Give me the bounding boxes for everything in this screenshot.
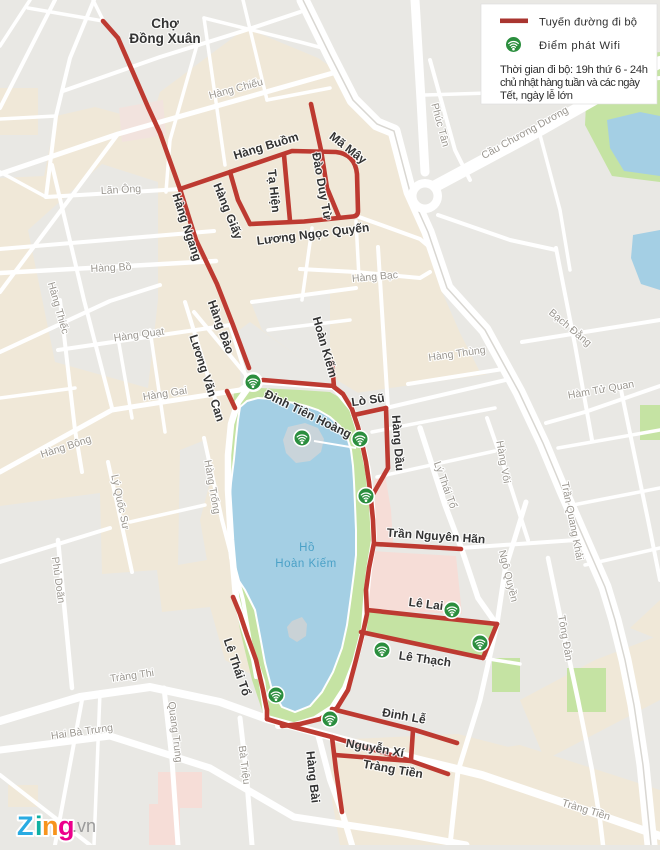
svg-text:Hàng Bồ: Hàng Bồ — [90, 261, 132, 275]
svg-text:Lãn Ông: Lãn Ông — [101, 182, 142, 197]
svg-text:Hồ: Hồ — [299, 542, 315, 554]
svg-text:Chợ: Chợ — [151, 16, 179, 31]
svg-text:chủ nhật hàng tuần và các ngày: chủ nhật hàng tuần và các ngày — [500, 77, 640, 89]
svg-text:Hoàn Kiếm: Hoàn Kiếm — [275, 558, 336, 570]
svg-text:n: n — [42, 811, 59, 841]
svg-text:Điểm phát Wifi: Điểm phát Wifi — [539, 40, 620, 52]
svg-text:Tuyến đường đi bộ: Tuyến đường đi bộ — [539, 17, 637, 29]
svg-text:Thời gian đi bộ: 19h thứ 6 - 2: Thời gian đi bộ: 19h thứ 6 - 24h — [500, 64, 648, 76]
svg-text:Tết, ngày lễ lớn: Tết, ngày lễ lớn — [500, 89, 573, 102]
svg-text:.vn: .vn — [72, 816, 96, 836]
svg-text:Z: Z — [17, 811, 34, 841]
svg-text:Đồng Xuân: Đồng Xuân — [129, 31, 200, 46]
